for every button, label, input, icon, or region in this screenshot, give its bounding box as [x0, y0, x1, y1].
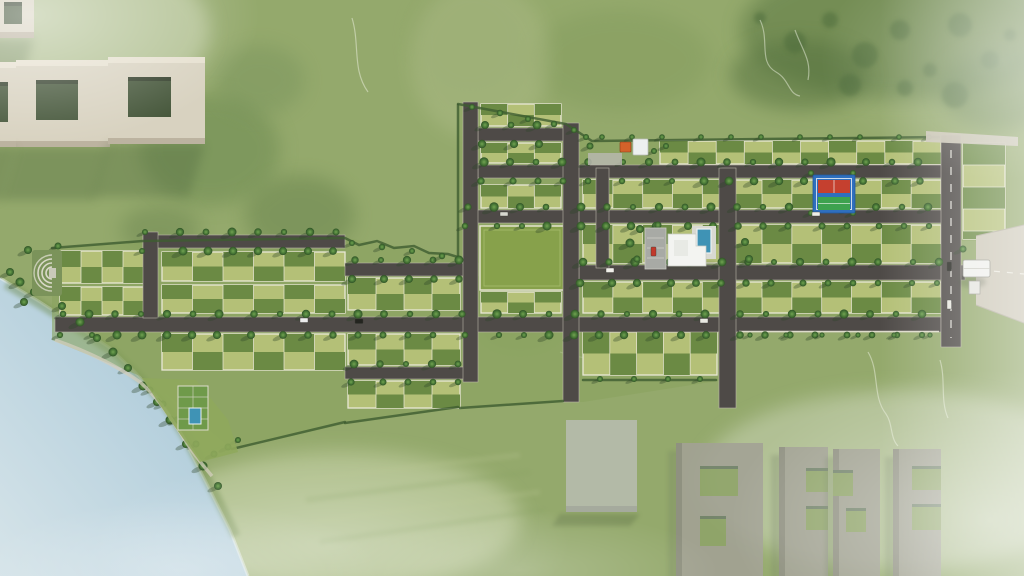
tree-canopy — [281, 229, 287, 235]
tree-canopy — [742, 279, 749, 286]
amphitheatre-stage — [49, 268, 56, 278]
plot — [716, 141, 744, 153]
plot — [254, 267, 285, 282]
tree-canopy — [76, 318, 85, 327]
forest-patch — [530, 10, 710, 110]
tree-canopy — [351, 256, 358, 263]
tree-canopy — [58, 302, 66, 310]
tree-canopy — [215, 310, 224, 319]
plot — [829, 141, 857, 153]
tree-canopy — [455, 379, 461, 385]
building-shadow — [92, 144, 205, 197]
building-shade-edge — [108, 138, 205, 144]
tree-canopy — [669, 178, 675, 184]
tree-canopy — [519, 223, 525, 229]
plot — [613, 298, 643, 314]
plot — [254, 352, 285, 370]
tree-canopy — [277, 311, 283, 317]
tree-canopy — [348, 275, 356, 283]
tree-canopy — [697, 376, 703, 382]
tree-canopy — [439, 253, 445, 259]
tree-canopy — [850, 280, 857, 287]
tree-canopy — [229, 247, 238, 256]
tree-canopy — [509, 177, 516, 184]
tree-canopy — [405, 379, 412, 386]
tree-canopy — [577, 222, 586, 231]
tree-canopy — [663, 143, 669, 149]
tree-canopy — [788, 310, 796, 318]
tree-canopy — [6, 268, 14, 276]
tree-canopy — [872, 203, 880, 211]
tree-canopy — [458, 310, 465, 317]
tree-canopy — [543, 222, 552, 231]
tree-canopy — [462, 332, 468, 338]
tree-canopy — [380, 379, 387, 386]
tree-canopy — [496, 332, 502, 338]
plot-section — [60, 251, 144, 283]
tree-canopy — [430, 275, 438, 283]
tree-canopy — [378, 257, 384, 263]
tree-canopy — [405, 275, 413, 283]
forest-canopy — [754, 12, 766, 24]
plot — [534, 104, 561, 115]
tree-canopy — [304, 331, 312, 339]
tree-canopy — [599, 134, 605, 140]
road-segment — [563, 123, 579, 402]
tree-canopy — [783, 332, 788, 337]
tree-canopy — [862, 158, 870, 166]
plot — [193, 352, 224, 370]
tree-canopy — [626, 239, 635, 248]
plot — [376, 294, 404, 310]
tree-canopy — [692, 279, 700, 287]
tree-canopy — [723, 158, 731, 166]
tree-canopy — [432, 310, 441, 319]
haze-right-edge — [880, 0, 1024, 576]
plot — [102, 251, 123, 267]
tree-canopy — [750, 159, 756, 165]
plot — [376, 395, 404, 409]
tree-canopy — [633, 279, 641, 287]
tree-canopy — [697, 158, 706, 167]
tree-canopy — [494, 223, 500, 229]
tree-canopy — [380, 275, 388, 283]
tree-canopy — [353, 309, 362, 318]
tree-canopy — [560, 178, 567, 185]
tree-canopy — [142, 229, 148, 235]
tree-canopy — [576, 279, 585, 288]
tree-canopy — [405, 332, 412, 339]
tree-canopy — [844, 332, 851, 339]
tree-canopy — [546, 311, 553, 318]
tree-canopy — [866, 310, 874, 318]
plot-section — [60, 287, 144, 315]
tree-canopy — [630, 204, 636, 210]
clubhouse-roof-detail — [674, 240, 688, 256]
road-segment — [463, 102, 478, 382]
tree-canopy — [477, 177, 484, 184]
plot — [432, 294, 460, 310]
tree-canopy — [827, 134, 833, 140]
tree-canopy — [802, 159, 809, 166]
plot — [254, 299, 285, 313]
tree-canopy — [138, 331, 147, 340]
tree-canopy — [677, 331, 685, 339]
plot-section — [162, 285, 345, 313]
block-courtyard — [700, 516, 726, 546]
tree-canopy — [510, 140, 518, 148]
tree-canopy — [761, 331, 768, 338]
tree-canopy — [455, 275, 462, 282]
tree-canopy — [608, 279, 616, 287]
central-park — [480, 226, 564, 290]
plot — [60, 251, 81, 267]
tree-canopy — [516, 203, 524, 211]
plot — [610, 354, 637, 376]
tree-canopy — [329, 331, 336, 338]
tree-canopy — [469, 104, 475, 110]
tree-canopy — [57, 332, 63, 338]
pad-surface — [566, 420, 637, 512]
tree-canopy — [519, 310, 527, 318]
plot — [60, 287, 81, 301]
plot — [123, 267, 144, 283]
tree-canopy — [85, 310, 94, 319]
tree-canopy — [176, 228, 184, 236]
plot — [673, 298, 703, 314]
tree-canopy — [350, 360, 359, 369]
tree-canopy — [619, 178, 625, 184]
plot — [534, 185, 561, 197]
tree-canopy — [579, 258, 588, 267]
plot-section — [481, 143, 561, 163]
tree-canopy — [521, 332, 527, 338]
courtyard-shadow — [700, 466, 738, 469]
car — [651, 247, 656, 256]
tree-canopy — [455, 361, 462, 368]
tree-canopy — [235, 437, 241, 443]
forest-canopy — [784, 31, 806, 53]
tree-canopy — [545, 331, 554, 340]
car — [606, 268, 614, 273]
tree-canopy — [733, 203, 741, 211]
tree-canopy — [533, 121, 542, 130]
tree-canopy — [825, 280, 832, 287]
orange-canopy — [620, 142, 631, 152]
tree-canopy — [859, 177, 867, 185]
tree-canopy — [627, 222, 635, 230]
tree-canopy — [279, 331, 287, 339]
tree-canopy — [631, 376, 637, 382]
tree-canopy — [577, 203, 586, 212]
plot — [432, 395, 460, 409]
tree-canopy — [826, 157, 835, 166]
screenshot-root — [0, 0, 1024, 576]
car — [812, 212, 820, 216]
plot — [284, 285, 315, 299]
car — [500, 212, 508, 216]
tree-canopy — [558, 158, 567, 167]
plot — [852, 298, 882, 314]
park-lawn — [480, 226, 564, 290]
tree-canopy — [800, 280, 807, 287]
tree-canopy — [111, 310, 118, 317]
tree-canopy — [379, 244, 385, 250]
tree-canopy — [665, 376, 671, 382]
plot — [663, 354, 690, 376]
tree-canopy — [655, 222, 662, 229]
road-segment — [143, 232, 158, 318]
tree-canopy — [409, 248, 415, 254]
plot — [193, 267, 224, 282]
tree-canopy — [823, 259, 830, 266]
tree-canopy — [725, 177, 734, 186]
tree-canopy — [583, 134, 589, 140]
plot — [732, 298, 762, 314]
tree-canopy — [333, 229, 340, 236]
tree-canopy — [525, 116, 531, 122]
tree-canopy — [138, 311, 144, 317]
tree-canopy — [380, 332, 387, 339]
tree-canopy — [16, 278, 25, 287]
tree-canopy — [819, 332, 824, 337]
tree-canopy — [254, 228, 262, 236]
tree-canopy — [489, 202, 498, 211]
tree-canopy — [279, 247, 287, 255]
amphitheatre — [32, 250, 62, 296]
tree-canopy — [304, 247, 312, 255]
road-segment — [719, 168, 736, 408]
car — [355, 319, 363, 324]
pad-edge — [566, 506, 637, 512]
tree-canopy — [478, 140, 486, 148]
tree-canopy — [481, 121, 489, 129]
plot — [102, 287, 123, 301]
tree-canopy — [684, 222, 692, 230]
plot — [315, 299, 346, 313]
tree-canopy — [771, 259, 777, 265]
road-segment — [345, 367, 475, 379]
tree-canopy — [213, 331, 221, 339]
plot — [162, 285, 193, 299]
tree-canopy — [506, 158, 514, 166]
tree-canopy — [775, 177, 783, 185]
plot — [534, 292, 561, 303]
tree-canopy — [533, 159, 540, 166]
plot — [81, 267, 102, 283]
tree-canopy — [254, 247, 262, 255]
tree-canopy — [848, 258, 857, 267]
plot — [481, 292, 508, 303]
tree-canopy — [800, 177, 808, 185]
plot — [792, 244, 822, 263]
plot — [481, 185, 508, 197]
tree-canopy — [767, 279, 774, 286]
tree-canopy — [602, 222, 611, 231]
tree-canopy — [250, 310, 258, 318]
tree-canopy — [718, 258, 727, 267]
tree-canopy — [403, 256, 411, 264]
tree-canopy — [113, 331, 122, 340]
site-plan-render — [0, 0, 1024, 576]
tree-canopy — [247, 331, 255, 339]
tree-canopy — [644, 178, 650, 184]
tree-canopy — [595, 331, 604, 340]
tree-canopy — [759, 222, 766, 229]
plot — [613, 194, 643, 208]
tree-canopy — [785, 203, 793, 211]
white-canopy — [633, 139, 648, 155]
tree-canopy — [535, 140, 543, 148]
tree-canopy — [605, 258, 612, 265]
tree-canopy — [24, 246, 32, 254]
tree-canopy — [659, 134, 665, 140]
tree-canopy — [203, 229, 210, 236]
tree-canopy — [306, 228, 314, 236]
tree-canopy — [60, 311, 67, 318]
tree-canopy — [571, 310, 580, 319]
tree-canopy — [844, 223, 851, 230]
tree-canopy — [603, 203, 610, 210]
car — [700, 319, 708, 324]
tree-canopy — [585, 178, 592, 185]
tree-canopy — [736, 331, 744, 339]
tree-canopy — [430, 379, 437, 386]
tree-canopy — [543, 204, 550, 211]
tree-canopy — [855, 332, 860, 337]
tree-canopy — [551, 121, 557, 127]
tree-canopy — [652, 331, 660, 339]
tree-canopy — [655, 203, 663, 211]
tree-canopy — [702, 331, 710, 339]
tree-canopy — [717, 279, 725, 287]
tree-canopy — [570, 331, 579, 340]
plot-section — [481, 292, 561, 313]
tree-canopy — [349, 240, 355, 246]
tree-canopy — [464, 203, 471, 210]
tree-canopy — [676, 311, 683, 318]
tree-canopy — [535, 178, 542, 185]
tree-canopy — [750, 177, 759, 186]
tree-canopy — [407, 311, 413, 317]
tree-canopy — [462, 223, 468, 229]
road-segment — [345, 263, 478, 276]
tree-canopy — [700, 177, 709, 186]
tree-canopy — [636, 225, 644, 233]
tree-canopy — [597, 310, 604, 317]
tree-canopy — [760, 204, 766, 210]
tree-canopy — [784, 222, 791, 229]
tree-canopy — [775, 158, 783, 166]
plot — [315, 352, 346, 370]
tree-canopy — [508, 122, 515, 129]
plot — [315, 267, 346, 282]
tree-canopy — [698, 134, 704, 140]
tree-canopy — [667, 279, 675, 287]
tree-canopy — [745, 255, 753, 263]
plot — [223, 285, 254, 299]
tree-canopy — [163, 310, 171, 318]
tree-canopy — [179, 247, 188, 256]
tree-canopy — [428, 360, 436, 368]
tree-canopy — [839, 309, 848, 318]
tree-canopy — [376, 360, 383, 367]
tree-canopy — [758, 134, 764, 140]
tree-canopy — [734, 222, 742, 230]
tree-canopy — [455, 256, 464, 265]
tree-canopy — [797, 134, 803, 140]
tree-canopy — [188, 331, 196, 339]
tree-canopy — [329, 247, 337, 255]
tree-canopy — [497, 110, 503, 116]
tree-canopy — [430, 332, 437, 339]
tree-canopy — [479, 157, 488, 166]
tree-canopy — [55, 243, 62, 250]
tree-canopy — [204, 247, 213, 256]
tree-canopy — [672, 159, 679, 166]
tree-canopy — [228, 228, 237, 237]
plot — [772, 141, 800, 153]
tree-canopy — [634, 256, 641, 263]
tree-canopy — [347, 378, 354, 385]
tree-canopy — [624, 311, 630, 317]
sports-court — [813, 175, 855, 213]
tree-canopy — [651, 148, 657, 154]
tree-canopy — [302, 310, 310, 318]
tree-canopy — [163, 331, 172, 340]
tree-canopy — [741, 238, 749, 246]
tree-canopy — [492, 309, 501, 318]
tree-canopy — [869, 332, 876, 339]
tree-canopy — [380, 310, 388, 318]
amphitheatre-pad — [32, 250, 62, 296]
tree-canopy — [20, 298, 28, 306]
tree-canopy — [571, 127, 577, 133]
road-segment — [478, 165, 943, 178]
tree-canopy — [819, 223, 826, 230]
garden-plaza — [588, 153, 622, 165]
tree-canopy — [763, 311, 769, 317]
tree-canopy — [796, 258, 804, 266]
tree-canopy — [736, 310, 744, 318]
car — [300, 318, 308, 323]
tree-canopy — [707, 203, 716, 212]
tree-canopy — [587, 143, 594, 150]
road-segment — [478, 128, 565, 141]
tree-canopy — [682, 204, 689, 211]
tree-canopy — [815, 311, 822, 318]
tree-canopy — [109, 348, 118, 357]
plot — [744, 153, 772, 165]
block-courtyard — [700, 466, 738, 496]
tree-canopy — [701, 310, 710, 319]
tree-canopy — [728, 134, 734, 140]
tree-canopy — [620, 331, 628, 339]
tree-canopy — [645, 158, 653, 166]
tree-canopy — [190, 311, 197, 318]
plunge-pool — [189, 408, 201, 424]
courtyard-shadow — [700, 516, 726, 519]
tree-canopy — [597, 376, 603, 382]
tree-canopy — [403, 361, 409, 367]
tree-canopy — [354, 331, 361, 338]
tree-canopy — [329, 311, 336, 318]
tree-canopy — [139, 248, 145, 254]
tree-canopy — [649, 310, 657, 318]
road-segment — [596, 168, 609, 268]
tree-canopy — [93, 334, 101, 342]
tree-canopy — [747, 332, 752, 337]
